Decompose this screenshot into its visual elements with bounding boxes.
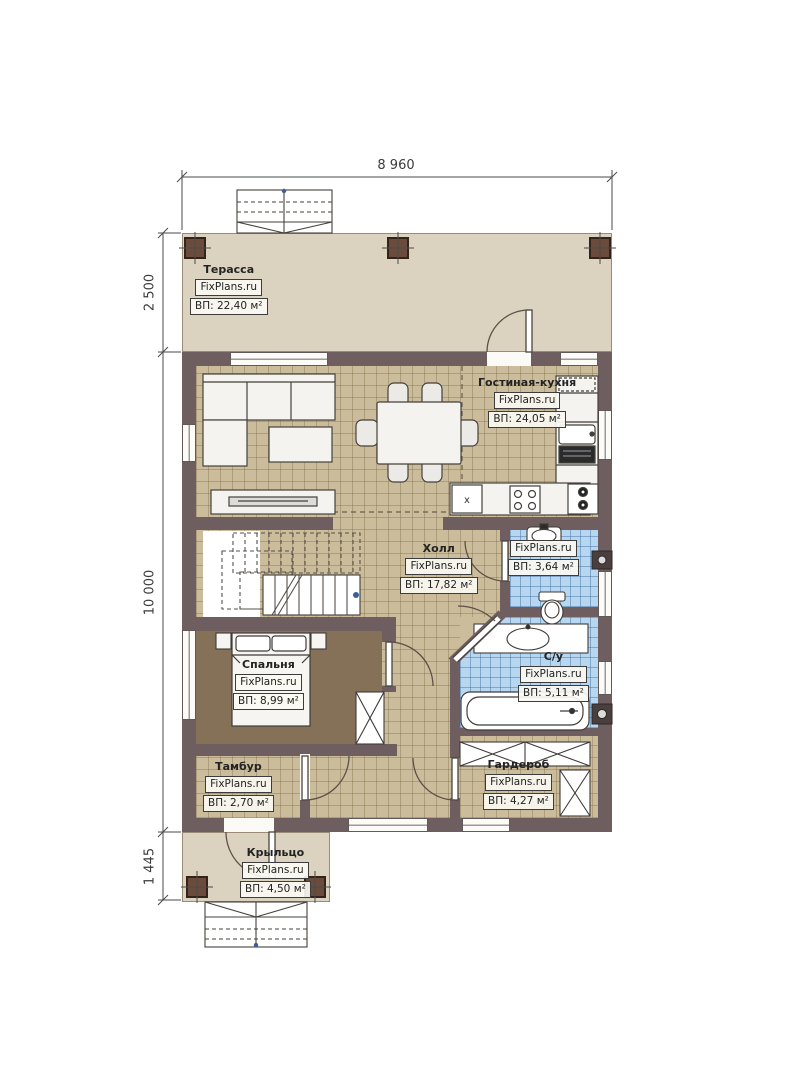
wall-segment: [196, 517, 333, 530]
room-name: Крыльцо: [247, 846, 305, 859]
area-label: ВП: 4,50 м²: [240, 881, 311, 898]
brand-label: FixPlans.ru: [242, 862, 309, 879]
room-label-vestibule: Тамбур FixPlans.ru ВП: 2,70 м²: [203, 760, 274, 812]
column: [387, 237, 409, 259]
wall-segment: [450, 660, 460, 728]
wall-segment: [382, 686, 396, 692]
wall-segment: [500, 581, 510, 607]
window: [230, 352, 328, 366]
area-label: ВП: 17,82 м²: [400, 577, 478, 594]
window: [598, 410, 612, 460]
room-label-hall: Холл FixPlans.ru ВП: 17,82 м²: [400, 542, 478, 594]
brand-label: FixPlans.ru: [405, 558, 472, 575]
room-label-terrace: Терасса FixPlans.ru ВП: 22,40 м²: [190, 263, 268, 315]
window: [182, 630, 196, 720]
porch-steps: [205, 902, 307, 947]
brand-label: FixPlans.ru: [494, 392, 561, 409]
window: [462, 818, 510, 832]
room-label-bedroom: Спальня FixPlans.ru ВП: 8,99 м²: [233, 658, 304, 710]
brand-label: FixPlans.ru: [520, 666, 587, 683]
column: [184, 237, 206, 259]
brand-label: FixPlans.ru: [235, 674, 302, 691]
window: [182, 424, 196, 462]
room-label-bathroom: С/у FixPlans.ru ВП: 5,11 м²: [518, 650, 589, 702]
window: [598, 661, 612, 695]
room-name: С/у: [544, 650, 563, 663]
wall-segment: [450, 798, 460, 818]
area-label: ВП: 22,40 м²: [190, 298, 268, 315]
column: [589, 237, 611, 259]
room-name: Терасса: [203, 263, 254, 276]
wall-segment: [450, 736, 460, 758]
room-label-wardrobe: Гардероб FixPlans.ru ВП: 4,27 м²: [483, 758, 554, 810]
room-label-wc: FixPlans.ru ВП: 3,64 м²: [508, 538, 579, 576]
dimension-terrace-depth: 2 500: [143, 261, 158, 325]
door-opening: [487, 352, 531, 366]
window: [348, 818, 428, 832]
brand-label: FixPlans.ru: [485, 774, 552, 791]
wall-segment: [300, 798, 310, 818]
area-label: ВП: 2,70 м²: [203, 795, 274, 812]
room-name: Холл: [423, 542, 455, 555]
stair-void: [203, 531, 260, 617]
wall-segment: [196, 744, 397, 756]
dimension-house-depth: 10 000: [143, 559, 158, 627]
area-label: ВП: 5,11 м²: [518, 685, 589, 702]
column: [186, 876, 208, 898]
door-opening: [300, 754, 310, 800]
brand-label: FixPlans.ru: [205, 776, 272, 793]
room-name: Спальня: [242, 658, 295, 671]
area-label: ВП: 4,27 м²: [483, 793, 554, 810]
wall-segment: [443, 517, 598, 530]
room-label-porch: Крыльцо FixPlans.ru ВП: 4,50 м²: [240, 846, 311, 898]
terrace-steps: [237, 189, 332, 233]
room-label-living-kitchen: Гостиная-кухня FixPlans.ru ВП: 24,05 м²: [478, 376, 576, 428]
dimension-porch-depth: 1 445: [143, 835, 158, 899]
wall-segment: [450, 728, 598, 736]
dimension-width: 8 960: [356, 158, 436, 173]
floor-plan: x: [0, 0, 792, 1080]
door-opening: [224, 818, 274, 832]
window: [598, 571, 612, 617]
wall-segment: [500, 607, 598, 617]
area-label: ВП: 3,64 м²: [508, 559, 579, 576]
area-label: ВП: 8,99 м²: [233, 693, 304, 710]
window: [560, 352, 598, 366]
brand-label: FixPlans.ru: [510, 540, 577, 557]
area-label: ВП: 24,05 м²: [488, 411, 566, 428]
brand-label: FixPlans.ru: [195, 279, 262, 296]
room-name: Тамбур: [215, 760, 262, 773]
wall-segment: [382, 631, 396, 642]
wall-segment: [196, 617, 396, 631]
room-name: Гардероб: [488, 758, 550, 771]
room-name: Гостиная-кухня: [478, 376, 576, 389]
